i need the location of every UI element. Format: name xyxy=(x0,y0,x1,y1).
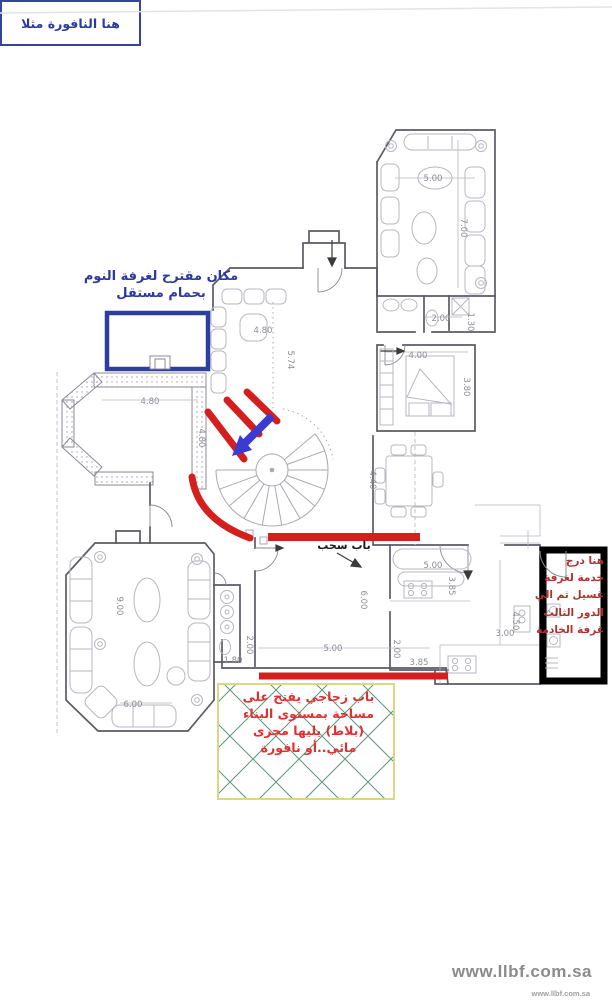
dimension-labels: 5.007.002.001.304.003.804.404.805.744.80… xyxy=(114,174,520,710)
door-symbol xyxy=(150,356,170,369)
dimension-label: 3.80 xyxy=(461,378,471,397)
dimension-label: 9.00 xyxy=(114,597,124,616)
proposed-room-note-line2: بحمام مستقل xyxy=(60,285,262,302)
red-markup xyxy=(192,392,448,676)
dimension-label: 5.74 xyxy=(285,351,295,370)
dimension-label: 4.00 xyxy=(409,351,428,361)
service-stair-note-line: خدمة لغرفة xyxy=(545,570,604,587)
dimension-label: 4.50 xyxy=(510,612,520,631)
dimension-label: 4.80 xyxy=(141,397,160,407)
dashed-guides xyxy=(57,372,415,735)
dimension-label: 3.00 xyxy=(496,629,515,639)
dimension-label: 3.85 xyxy=(410,658,429,668)
floor-plan-page: 5.007.002.001.304.003.804.404.805.744.80… xyxy=(0,0,612,1008)
proposed-room-rect xyxy=(107,313,208,369)
dimension-label: 2.00 xyxy=(432,314,451,324)
dimension-label: 3.85 xyxy=(446,577,456,596)
glass-door-note: باب زجاجي يفتح على مساحة بمستوى البناء (… xyxy=(226,688,391,756)
service-stair-note-line: غسيل ثم الي xyxy=(545,587,604,604)
service-stair-note-line: الدور الثالث xyxy=(545,605,604,622)
dimension-label: 2.00 xyxy=(244,636,254,655)
service-stair-note-line: غرفة الخادمة xyxy=(545,622,604,639)
proposed-room-note-line1: مكان مقترح لغرفة النوم xyxy=(60,268,262,285)
dimension-label: 4.40 xyxy=(367,471,377,490)
floor-plan-svg: 5.007.002.001.304.003.804.404.805.744.80… xyxy=(0,0,612,1008)
terrace-hatched-walls xyxy=(62,373,206,489)
direction-arrows xyxy=(276,240,472,579)
service-stair-note-line: هنا درج xyxy=(545,553,604,570)
dimension-label: 7.00 xyxy=(458,219,468,238)
dimension-label: 4.80 xyxy=(196,429,206,448)
dimension-label: 6.00 xyxy=(358,591,368,610)
watermark-small: www.llbf.com.sa xyxy=(532,989,590,998)
dimension-label: 1.30 xyxy=(465,313,475,332)
dimension-label: 5.00 xyxy=(424,174,443,184)
dimension-label: 2.00 xyxy=(391,640,401,659)
dimension-label: 1.80 xyxy=(224,656,243,666)
dimension-label: 6.00 xyxy=(124,700,143,710)
page-top-line xyxy=(0,7,612,13)
proposed-room-note: مكان مقترح لغرفة النوم بحمام مستقل xyxy=(60,268,262,302)
dimension-label: 4.80 xyxy=(254,326,273,336)
dimension-label: 5.00 xyxy=(424,561,443,571)
dimension-label: 5.00 xyxy=(324,644,343,654)
glass-door-note-line: مائي..أو نافورة xyxy=(226,739,391,756)
sliding-door-label: باب سحب xyxy=(298,539,390,552)
glass-door-note-line: (بلاط) يليها مجرى xyxy=(226,722,391,739)
service-stair-note: هنا درج خدمة لغرفة غسيل ثم الي الدور الث… xyxy=(545,553,604,639)
glass-door-note-line: باب زجاجي يفتح على xyxy=(226,688,391,705)
glass-door-note-line: مساحة بمستوى البناء xyxy=(226,705,391,722)
watermark-large: www.llbf.com.sa xyxy=(452,962,592,982)
